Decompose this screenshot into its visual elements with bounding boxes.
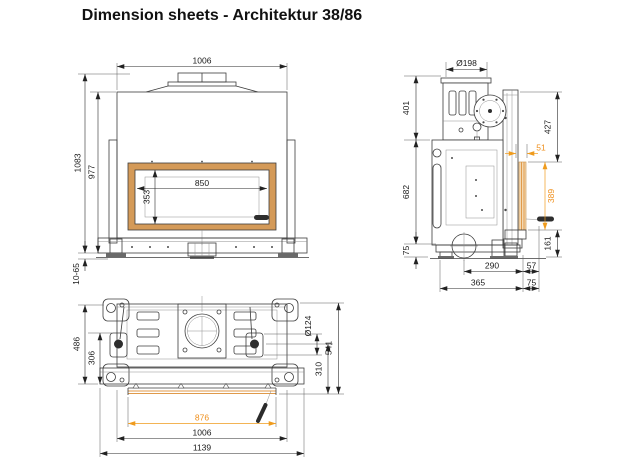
dim-side-upper-height: 401 xyxy=(401,101,411,115)
dim-front-foot-range: 10-65 xyxy=(71,263,81,285)
door-handle-bottom xyxy=(258,405,266,421)
dim-side-flue-diameter: Ø198 xyxy=(456,58,477,68)
dim-side-front-to-glass: 57 xyxy=(527,261,537,271)
dim-bottom-body-depth: 486 xyxy=(72,337,82,351)
dim-side-glass-to-floor: 161 xyxy=(543,236,553,250)
glass-side xyxy=(519,162,526,230)
dim-side-flue-to-front: 290 xyxy=(485,261,499,271)
dim-front-body-height: 977 xyxy=(87,165,97,179)
dim-bottom-body-width: 1006 xyxy=(193,428,212,438)
dim-side-base-height: 75 xyxy=(401,246,411,256)
dim-side-base-to-glass: 75 xyxy=(527,278,537,288)
door-handle-side xyxy=(537,217,554,222)
left-foot xyxy=(110,239,122,253)
dim-front-glass-height: 353 xyxy=(142,190,152,204)
side-view: Ø198 401 682 75 427 51 389 161 290 57 36… xyxy=(401,58,562,292)
dim-bottom-latch-to-front: 310 xyxy=(314,362,324,376)
dim-side-body-height: 682 xyxy=(401,185,411,199)
flue-collar-side xyxy=(441,78,491,83)
front-band-bottom xyxy=(100,368,304,384)
dim-side-base-depth: 365 xyxy=(471,278,485,288)
dim-bottom-glass-width: 876 xyxy=(195,413,209,423)
page-title: Dimension sheets - Architektur 38/86 xyxy=(82,7,362,24)
firebox-body-side xyxy=(432,140,503,245)
right-foot xyxy=(282,239,294,253)
dim-side-glass-depth: 51 xyxy=(536,143,546,153)
dim-bottom-overall-width: 1139 xyxy=(193,443,212,453)
dim-bottom-inlet-diameter: Ø124 xyxy=(303,315,313,336)
dim-side-glass-height: 389 xyxy=(546,189,556,203)
door-handle-front xyxy=(254,215,269,220)
dim-front-glass-width: 850 xyxy=(195,178,209,188)
bottom-view: 486 306 Ø124 310 541 876 1006 1139 xyxy=(72,296,345,457)
dim-bottom-inner-depth: 306 xyxy=(87,351,97,365)
dim-bottom-overall-depth: 541 xyxy=(324,341,334,355)
dimension-drawing: Dimension sheets - Architektur 38/86 xyxy=(0,0,624,460)
dimension-sheet-page: Dimension sheets - Architektur 38/86 xyxy=(0,0,624,460)
dim-side-top-to-glass: 427 xyxy=(543,120,553,134)
dim-front-overall-height: 1083 xyxy=(73,153,83,172)
front-view: 1006 1083 977 10-65 850 353 xyxy=(71,56,309,285)
dim-front-overall-width: 1006 xyxy=(193,56,212,66)
